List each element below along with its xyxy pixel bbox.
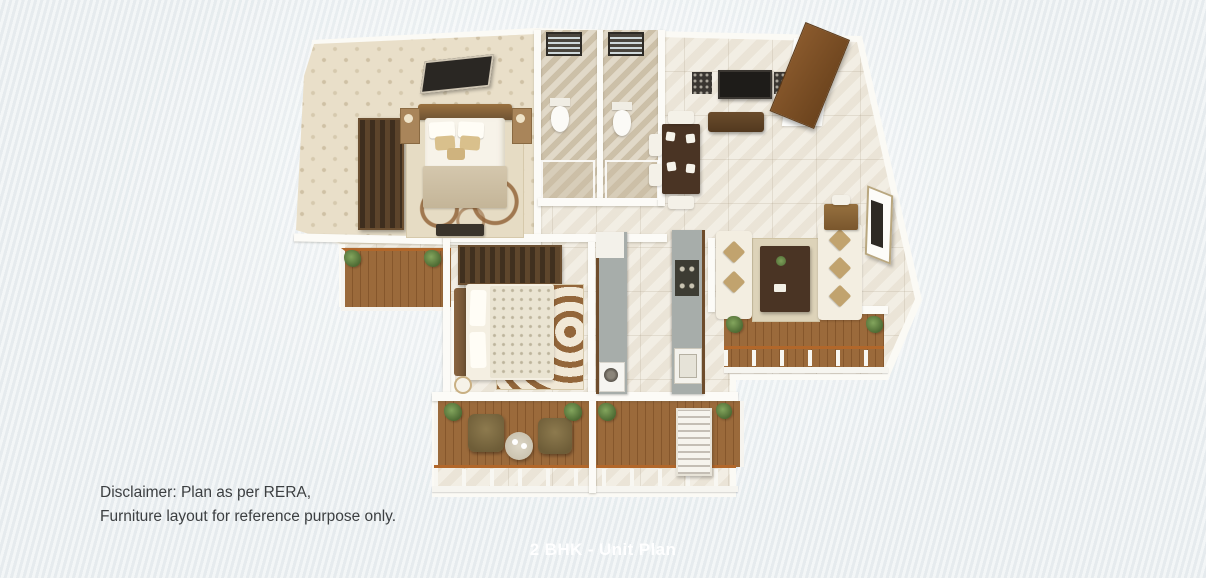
kitchen-platform-cap (596, 232, 624, 258)
master-lamp-left (404, 114, 413, 123)
living-balcony-rail-accent (724, 346, 884, 349)
master-bed-blanket (423, 166, 507, 208)
wall-unit-speaker-left (692, 72, 712, 94)
bedroom2-pouf (454, 376, 472, 394)
deck-round-table (505, 432, 533, 460)
dining-chair-west-1 (649, 134, 662, 156)
dining-plate-2 (686, 134, 696, 144)
living-balcony-railing-bar (724, 367, 888, 373)
bathroom1-shower (541, 160, 595, 200)
washing-machine-door (604, 368, 618, 382)
coffee-table (760, 246, 810, 312)
coffee-table-plant (776, 256, 786, 266)
disclaimer-line-1: Disclaimer: Plan as per RERA, (100, 481, 396, 505)
deck-lounge-chair (676, 408, 712, 476)
floor-plan-3d (288, 12, 938, 512)
bedroom2-duvet (490, 286, 554, 378)
dining-chair-north (668, 111, 694, 124)
deck-armchair-1 (468, 414, 504, 452)
wall-master-east (534, 30, 541, 244)
plan-title: 2 BHK - Unit Plan (530, 540, 677, 560)
bedroom2-headboard (454, 288, 466, 376)
bedroom2-wardrobe (458, 245, 562, 285)
living-balcony-plant-left (726, 316, 743, 333)
coffee-table-decor (774, 284, 786, 292)
dining-plate-3 (666, 161, 676, 171)
dining-plate-1 (665, 131, 675, 141)
living-desk-chair (832, 195, 850, 205)
disclaimer-line-2: Furniture layout for reference purpose o… (100, 505, 396, 529)
bathroom2-toilet-tank (612, 102, 632, 110)
master-cushion-center (447, 148, 465, 160)
wall-bedroom2-east (588, 242, 595, 398)
bedroom2-pillow-1 (469, 290, 486, 327)
kitchen-hob (675, 260, 699, 296)
wall-bath-divider (597, 30, 603, 202)
deck-railing-bar (432, 486, 738, 492)
bathroom2-toilet (613, 110, 631, 136)
master-balcony-plant-right (424, 250, 441, 267)
dining-plate-4 (686, 164, 696, 174)
bathroom2-window (608, 32, 644, 56)
living-balcony-railing-posts (724, 350, 884, 366)
living-wall-art-picture (871, 200, 883, 248)
deck-table-plate-1 (512, 439, 518, 445)
wall-bedroom2-west (443, 238, 450, 398)
bathroom1-toilet-tank (550, 98, 570, 106)
dining-chair-west-2 (649, 164, 662, 186)
living-side-desk (824, 204, 858, 230)
deck-plant-4 (716, 403, 732, 419)
bathroom1-toilet (551, 106, 569, 132)
dining-chair-south (668, 196, 694, 209)
foyer-console-table (708, 112, 764, 132)
master-lamp-right (516, 114, 525, 123)
master-wardrobe (358, 118, 404, 230)
deck-plant-1 (444, 403, 462, 421)
disclaimer-text: Disclaimer: Plan as per RERA, Furniture … (100, 481, 396, 529)
wall-deck-divider (589, 401, 596, 493)
kitchen-sink-basin (679, 354, 697, 378)
wall-kitchen-east (708, 238, 715, 312)
master-balcony-plant-left (344, 250, 361, 267)
living-balcony-plant-right (866, 316, 883, 333)
bedroom2-pillow-2 (469, 332, 486, 369)
deck-plant-3 (598, 403, 616, 421)
deck-armchair-2 (538, 418, 572, 454)
master-foot-bench (436, 224, 484, 236)
wall-unit-tv-screen (718, 70, 772, 99)
screenshot-canvas: Disclaimer: Plan as per RERA, Furniture … (0, 0, 1206, 578)
deck-plant-2 (564, 403, 582, 421)
bathroom1-window (546, 32, 582, 56)
deck-table-plate-2 (521, 443, 527, 449)
